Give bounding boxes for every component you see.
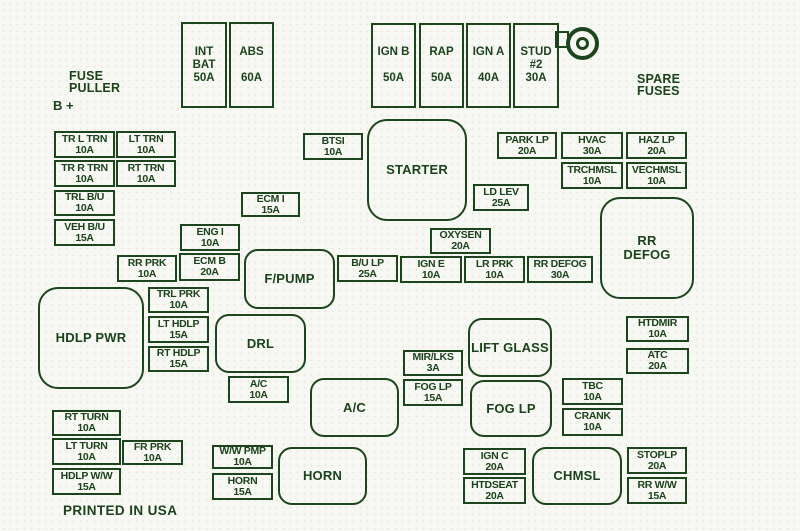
fuse-amp: 10A: [648, 329, 666, 340]
relay-f-pump: F/PUMP: [244, 249, 335, 309]
fuse-ww-pmp: W/W PMP10A: [212, 445, 273, 469]
fuse-ecm-b: ECM B20A: [179, 253, 240, 281]
fuse-amp: 10A: [647, 176, 665, 187]
fuse-name: STUD #2: [518, 46, 555, 72]
fuse-rr-ww: RR W/W15A: [627, 477, 687, 504]
fuse-amp: 15A: [261, 205, 279, 216]
fuse-amp: 20A: [200, 267, 218, 278]
fuse-name: LT TRN: [129, 134, 164, 145]
fuse-amp: 10A: [201, 238, 219, 249]
fuse-amp: 40A: [478, 72, 499, 85]
fuse-trl-prk: TRL PRK10A: [148, 287, 209, 313]
fuse-name: HVAC: [578, 135, 606, 146]
fuse-amp: 20A: [485, 462, 503, 473]
fuse-lt-hdlp: LT HDLP15A: [148, 316, 209, 343]
fuse-amp: 20A: [647, 146, 665, 157]
fuse-name: ECM I: [257, 194, 285, 205]
maxi-fuse-rap: RAP50A: [419, 23, 464, 108]
fuse-rt-trn: RT TRN10A: [116, 160, 176, 187]
fuse-name: HAZ LP: [638, 135, 674, 146]
fuse-stoplp: STOPLP20A: [627, 447, 687, 474]
fuse-amp: 10A: [169, 300, 187, 311]
fuse-rr-defog: RR DEFOG30A: [527, 256, 593, 283]
relay-label: F/PUMP: [264, 272, 314, 286]
fuse-rt-hdlp: RT HDLP15A: [148, 346, 209, 372]
fuse-rt-turn: RT TURN10A: [52, 410, 121, 436]
fuse-amp: 10A: [583, 392, 601, 403]
relay-ac: A/C: [310, 378, 399, 437]
fuse-veh-bu: VEH B/U15A: [54, 219, 115, 246]
fuse-amp: 10A: [77, 423, 95, 434]
fuse-amp: 10A: [143, 453, 161, 464]
fuse-amp: 10A: [75, 174, 93, 185]
fuse-amp: 50A: [193, 72, 214, 85]
fuse-horn: HORN15A: [212, 473, 273, 500]
fuse-oxysen: OXYSEN20A: [430, 228, 491, 254]
fuse-amp: 10A: [485, 270, 503, 281]
fuse-btsi: BTSI10A: [303, 133, 363, 160]
fuse-fr-prk: FR PRK10A: [122, 440, 183, 465]
ring-terminal-hole: [576, 37, 589, 50]
fuse-name: HTDSEAT: [471, 480, 518, 491]
fuse-name: B/U LP: [351, 258, 384, 269]
fuse-amp: 3A: [427, 363, 440, 374]
fuse-name: LR PRK: [476, 259, 513, 270]
fuse-htdseat: HTDSEAT20A: [463, 477, 526, 504]
fuse-amp: 10A: [422, 270, 440, 281]
fuse-name: ENG I: [196, 227, 223, 238]
fuse-rr-prk: RR PRK10A: [117, 255, 177, 282]
relay-label: LIFT GLASS: [471, 341, 549, 355]
fuse-name: RR PRK: [128, 258, 166, 269]
relay-label: FOG LP: [486, 402, 536, 416]
fuse-park-lp: PARK LP20A: [497, 132, 557, 159]
fuse-amp: 15A: [75, 233, 93, 244]
fuse-name: IGN B: [378, 46, 410, 72]
fuse-amp: 10A: [75, 203, 93, 214]
relay-hdlp-pwr: HDLP PWR: [38, 287, 144, 389]
fuse-name: IGN C: [481, 451, 509, 462]
fuse-name: VECHMSL: [632, 165, 681, 176]
fuse-name: BTSI: [322, 136, 345, 147]
fuse-ign-e: IGN E10A: [400, 256, 462, 283]
fuse-name: RT TRN: [128, 163, 165, 174]
relay-label: HDLP PWR: [56, 331, 127, 345]
fuse-name: STOPLP: [637, 450, 677, 461]
relay-chmsl: CHMSL: [532, 447, 622, 505]
fuse-name: ABS: [239, 46, 263, 72]
fuse-lt-trn: LT TRN10A: [116, 131, 176, 158]
fuse-haz-lp: HAZ LP20A: [626, 132, 687, 159]
fuse-ign-c: IGN C20A: [463, 448, 526, 475]
fuse-amp: 20A: [518, 146, 536, 157]
fuse-amp: 50A: [431, 72, 452, 85]
fuse-name: VEH B/U: [64, 222, 105, 233]
fuse-vechmsl: VECHMSL10A: [626, 162, 687, 189]
fuse-name: FR PRK: [134, 442, 171, 453]
relay-drl: DRL: [215, 314, 306, 373]
printed-in-usa-label: PRINTED IN USA: [63, 503, 177, 518]
fuse-name: IGN E: [417, 259, 444, 270]
fuse-name: RR DEFOG: [533, 259, 586, 270]
fuse-amp: 10A: [233, 457, 251, 468]
fuse-name: TRCHMSL: [567, 165, 616, 176]
maxi-fuse-ign-a: IGN A40A: [466, 23, 511, 108]
relay-label: STARTER: [386, 163, 448, 177]
fuse-puller-line2: PULLER: [69, 82, 120, 94]
relay-label: A/C: [343, 401, 366, 415]
fuse-amp: 10A: [137, 145, 155, 156]
fuse-amp: 30A: [583, 146, 601, 157]
fuse-trl-bu: TRL B/U10A: [54, 190, 115, 216]
fuse-name: LD LEV: [483, 187, 519, 198]
fuse-trchmsl: TRCHMSL10A: [561, 162, 623, 189]
maxi-fuse-stud-2: STUD #230A: [513, 23, 559, 108]
fuse-tr-r-trn: TR R TRN10A: [54, 160, 115, 187]
relay-label: RR DEFOG: [619, 234, 675, 262]
fuse-amp: 10A: [583, 422, 601, 433]
fuse-hvac: HVAC30A: [561, 132, 623, 159]
fuse-name: LT TURN: [65, 441, 107, 452]
fuse-name: RAP: [429, 46, 453, 72]
fuse-amp: 15A: [169, 330, 187, 341]
fuse-name: RR W/W: [637, 480, 676, 491]
maxi-fuse-abs: ABS60A: [229, 22, 274, 108]
fuse-atc: ATC20A: [626, 348, 689, 374]
fuse-name: FOG LP: [414, 382, 451, 393]
fuse-amp: 10A: [77, 452, 95, 463]
fuse-amp: 15A: [233, 487, 251, 498]
fuse-hdlp-ww: HDLP W/W15A: [52, 468, 121, 495]
fuse-name: TR R TRN: [61, 163, 108, 174]
fuse-lt-turn: LT TURN10A: [52, 438, 121, 465]
fuse-box-diagram: FUSE PULLER B + SPARE FUSES PRINTED IN U…: [0, 0, 800, 531]
fuse-puller-label: FUSE PULLER: [69, 70, 120, 94]
maxi-fuse-ign-b: IGN B50A: [371, 23, 416, 108]
fuse-amp: 15A: [424, 393, 442, 404]
fuse-eng-i: ENG I10A: [180, 224, 240, 251]
fuse-amp: 10A: [324, 147, 342, 158]
fuse-crank: CRANK10A: [562, 408, 623, 436]
fuse-ac: A/C10A: [228, 376, 289, 403]
relay-lift-glass: LIFT GLASS: [468, 318, 552, 377]
relay-fog-lp: FOG LP: [470, 380, 552, 437]
fuse-tbc: TBC10A: [562, 378, 623, 405]
fuse-amp: 30A: [551, 270, 569, 281]
fuse-fog-lp: FOG LP15A: [403, 379, 463, 406]
fuse-ld-lev: LD LEV25A: [473, 184, 529, 211]
fuse-name: TBC: [582, 381, 603, 392]
relay-label: HORN: [303, 469, 342, 483]
fuse-amp: 10A: [138, 269, 156, 280]
fuse-amp: 20A: [451, 241, 469, 252]
fuse-name: A/C: [250, 379, 267, 390]
fuse-name: LT HDLP: [158, 319, 199, 330]
spare-fuses-line2: FUSES: [637, 85, 680, 97]
relay-starter: STARTER: [367, 119, 467, 221]
fuse-mir-lks: MIR/LKS3A: [403, 350, 463, 376]
fuse-amp: 15A: [169, 359, 187, 370]
relay-label: DRL: [247, 337, 274, 351]
fuse-amp: 50A: [383, 72, 404, 85]
fuse-amp: 30A: [525, 72, 546, 85]
spare-fuses-label: SPARE FUSES: [637, 73, 680, 97]
b-plus-label: B +: [53, 98, 74, 113]
fuse-amp: 15A: [648, 491, 666, 502]
fuse-amp: 60A: [241, 72, 262, 85]
fuse-name: PARK LP: [505, 135, 548, 146]
fuse-amp: 20A: [485, 491, 503, 502]
fuse-amp: 25A: [492, 198, 510, 209]
fuse-name: HDLP W/W: [61, 471, 113, 482]
fuse-amp: 20A: [648, 461, 666, 472]
fuse-amp: 10A: [583, 176, 601, 187]
fuse-ecm-i: ECM I15A: [241, 192, 300, 217]
fuse-lr-prk: LR PRK10A: [464, 256, 525, 283]
fuse-amp: 15A: [77, 482, 95, 493]
relay-label: CHMSL: [553, 469, 600, 483]
fuse-bu-lp: B/U LP25A: [337, 255, 398, 282]
relay-horn: HORN: [278, 447, 367, 505]
fuse-amp: 20A: [648, 361, 666, 372]
fuse-amp: 10A: [137, 174, 155, 185]
fuse-name: INT BAT: [186, 46, 223, 72]
fuse-tr-l-trn: TR L TRN10A: [54, 131, 115, 158]
relay-rr-defog: RR DEFOG: [600, 197, 694, 299]
fuse-htdmir: HTDMIR10A: [626, 316, 689, 342]
fuse-amp: 25A: [358, 269, 376, 280]
fuse-amp: 10A: [249, 390, 267, 401]
fuse-name: IGN A: [473, 46, 505, 72]
fuse-name: HORN: [228, 476, 258, 487]
maxi-fuse-int-bat: INT BAT50A: [181, 22, 227, 108]
fuse-amp: 10A: [75, 145, 93, 156]
fuse-name: TR L TRN: [62, 134, 107, 145]
